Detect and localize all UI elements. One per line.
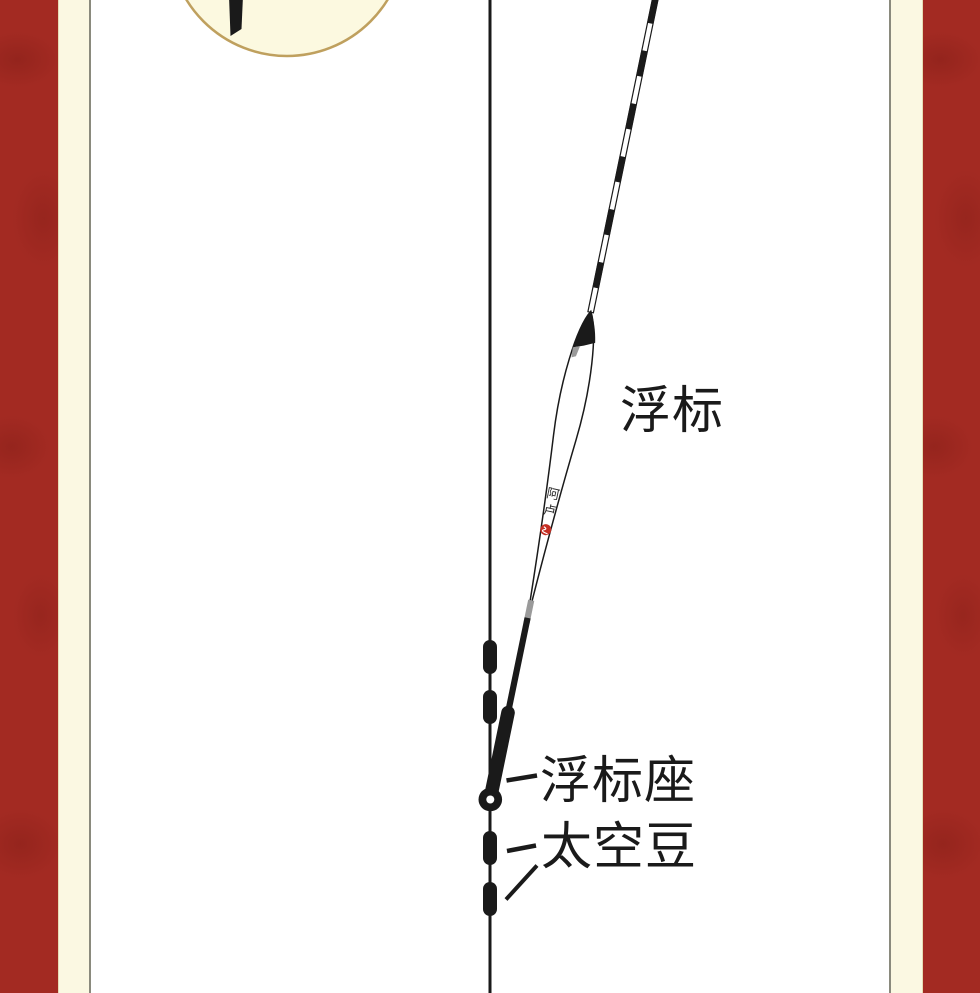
brand-char-bottom: 卢 xyxy=(542,502,558,519)
space-bean xyxy=(483,882,497,916)
label-space-bean: 太空豆 xyxy=(541,820,697,874)
space-bean xyxy=(483,831,497,865)
space-bean xyxy=(483,640,497,674)
inset-circle xyxy=(169,0,405,56)
comic-page: 阿 卢 浮标 浮标座 太空豆 xyxy=(0,0,980,993)
float-body xyxy=(517,309,603,607)
bean-leader-dash xyxy=(507,846,536,852)
float-stem xyxy=(506,617,531,710)
label-float: 浮标 xyxy=(620,384,724,438)
space-bean xyxy=(483,690,497,724)
seat-leader-dash xyxy=(507,776,538,781)
label-float-seat: 浮标座 xyxy=(540,754,696,808)
seat-ring-hole xyxy=(486,796,494,804)
leader-lines xyxy=(506,776,537,900)
bean-pointer-line xyxy=(506,866,537,900)
tackle-diagram: 阿 卢 xyxy=(0,0,980,993)
